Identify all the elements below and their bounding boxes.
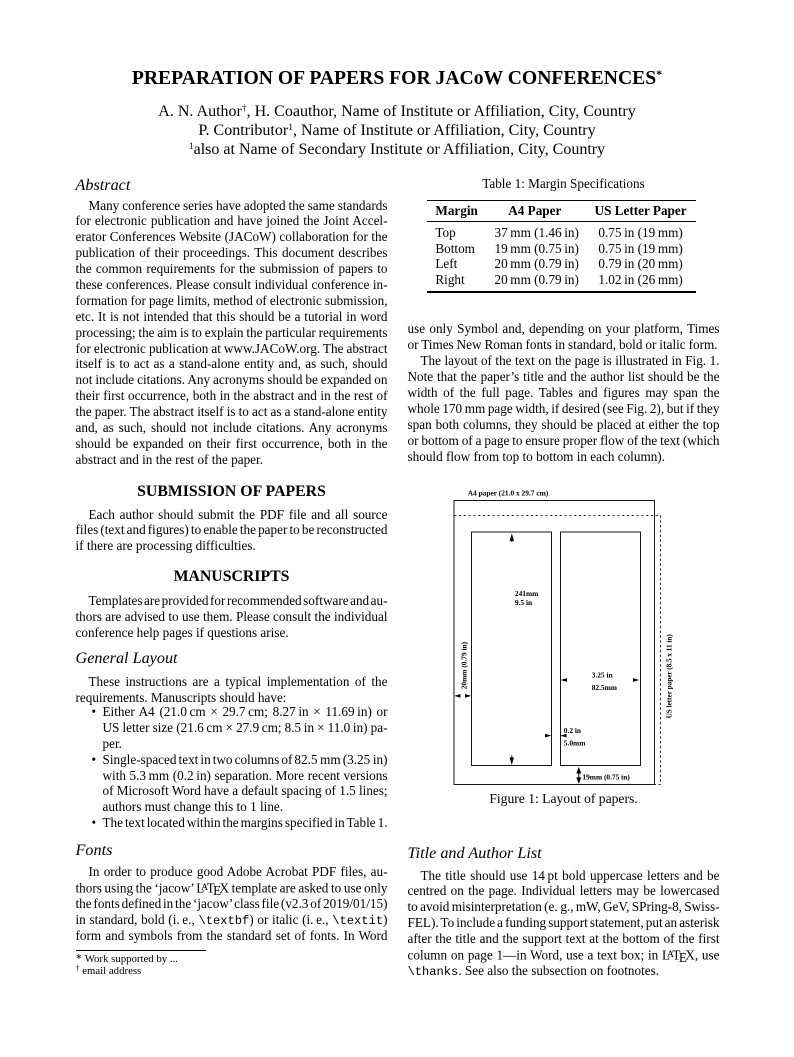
svg-text:20mm (0.79 in): 20mm (0.79 in) (460, 641, 469, 689)
svg-text:82.5mm: 82.5mm (592, 683, 618, 692)
svg-text:US letter paper (8.5 x 11 in): US letter paper (8.5 x 11 in) (665, 634, 673, 719)
svg-text:A4 paper (21.0 x 29.7 cm): A4 paper (21.0 x 29.7 cm) (468, 489, 549, 498)
svg-text:9.5 in: 9.5 in (515, 598, 532, 607)
svg-text:3.25 in: 3.25 in (592, 670, 613, 679)
svg-text:241mm: 241mm (515, 589, 539, 598)
svg-text:19mm (0.75 in): 19mm (0.75 in) (582, 772, 630, 781)
svg-text:5.0mm: 5.0mm (564, 739, 586, 748)
svg-text:0.2 in: 0.2 in (564, 726, 581, 735)
